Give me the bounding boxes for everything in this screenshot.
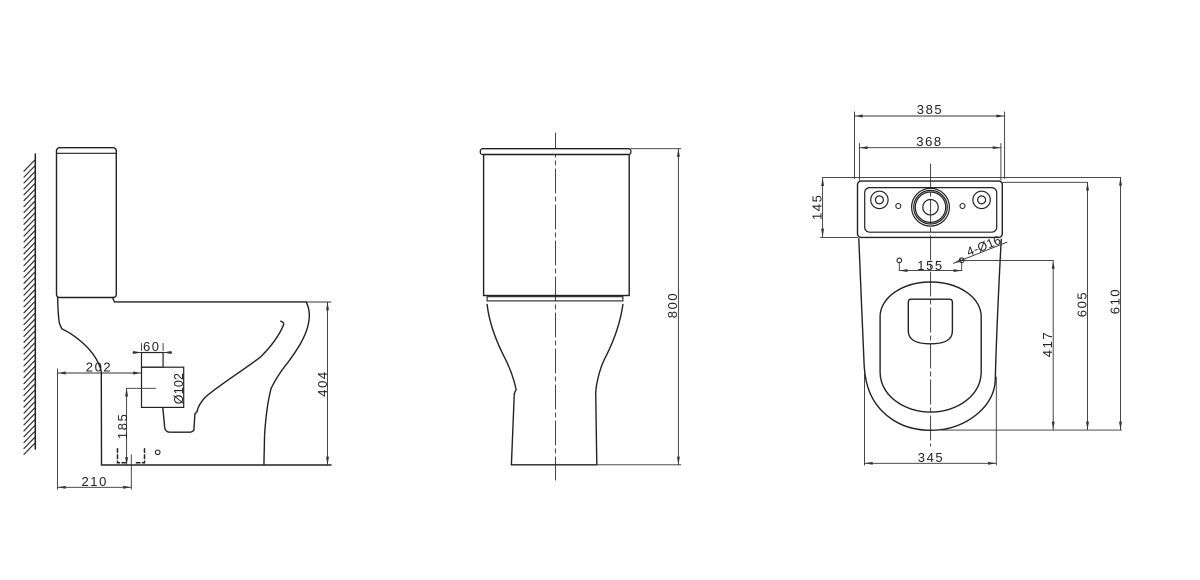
- svg-text:345: 345: [918, 450, 945, 465]
- svg-text:385: 385: [917, 102, 944, 117]
- svg-text:210: 210: [81, 474, 108, 489]
- svg-text:800: 800: [665, 292, 680, 319]
- svg-text:60: 60: [143, 339, 161, 354]
- svg-text:610: 610: [1107, 288, 1122, 315]
- svg-text:605: 605: [1075, 291, 1090, 318]
- svg-text:145: 145: [809, 194, 824, 221]
- svg-text:202: 202: [86, 360, 113, 375]
- svg-text:404: 404: [315, 370, 330, 397]
- svg-text:368: 368: [916, 134, 943, 149]
- svg-text:185: 185: [115, 413, 130, 440]
- svg-text:417: 417: [1040, 331, 1055, 358]
- svg-text:Ø102: Ø102: [172, 373, 186, 404]
- svg-text:155: 155: [917, 258, 944, 273]
